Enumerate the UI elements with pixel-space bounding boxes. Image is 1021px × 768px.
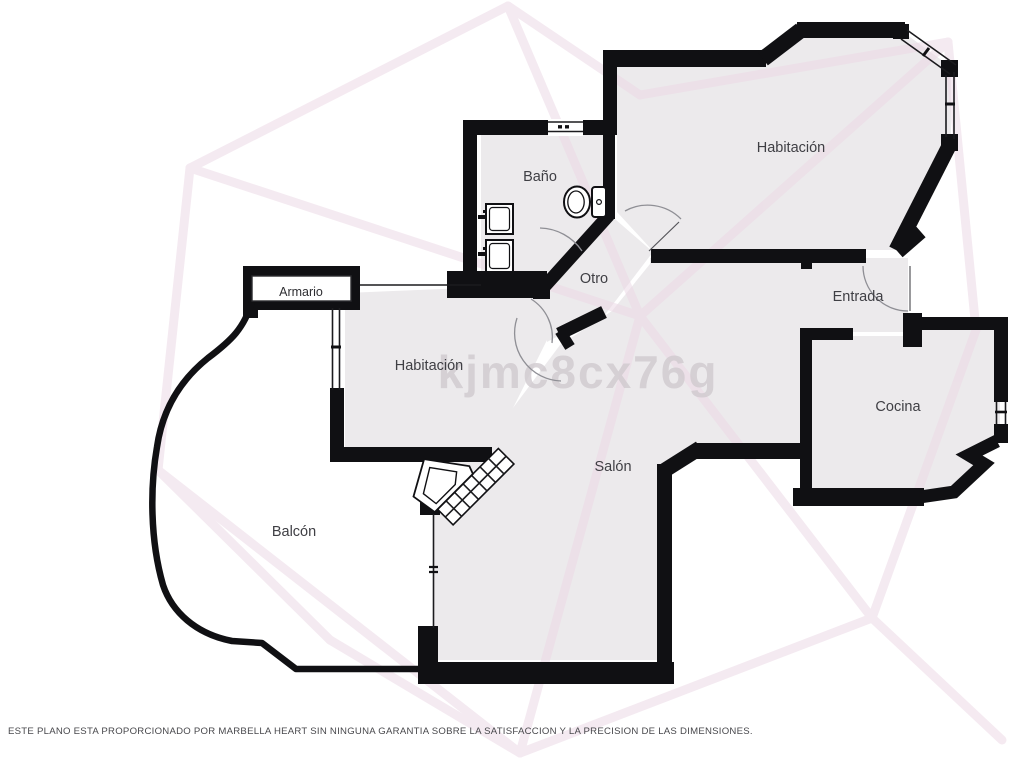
floorplan-image: kjmc8cx76g	[0, 0, 1021, 768]
room-label-bedroom-1: Habitación	[757, 140, 826, 156]
watermark-text: kjmc8cx76g	[438, 346, 719, 398]
toilet-icon	[564, 187, 606, 218]
room-fills	[345, 29, 1000, 660]
room-label-bathroom: Baño	[523, 169, 557, 185]
room-label-bedroom-2: Habitación	[395, 358, 464, 374]
room-label-living-room: Salón	[594, 459, 631, 475]
room-label-kitchen: Cocina	[875, 399, 921, 415]
room-label-closet: Armario	[279, 285, 323, 299]
room-label-balcony: Balcón	[272, 524, 316, 540]
floorplan-svg: kjmc8cx76g	[0, 0, 1021, 768]
room-label-entrance: Entrada	[833, 289, 885, 305]
disclaimer-text: ESTE PLANO ESTA PROPORCIONADO POR MARBEL…	[8, 726, 753, 737]
room-label-hall: Otro	[580, 271, 608, 287]
